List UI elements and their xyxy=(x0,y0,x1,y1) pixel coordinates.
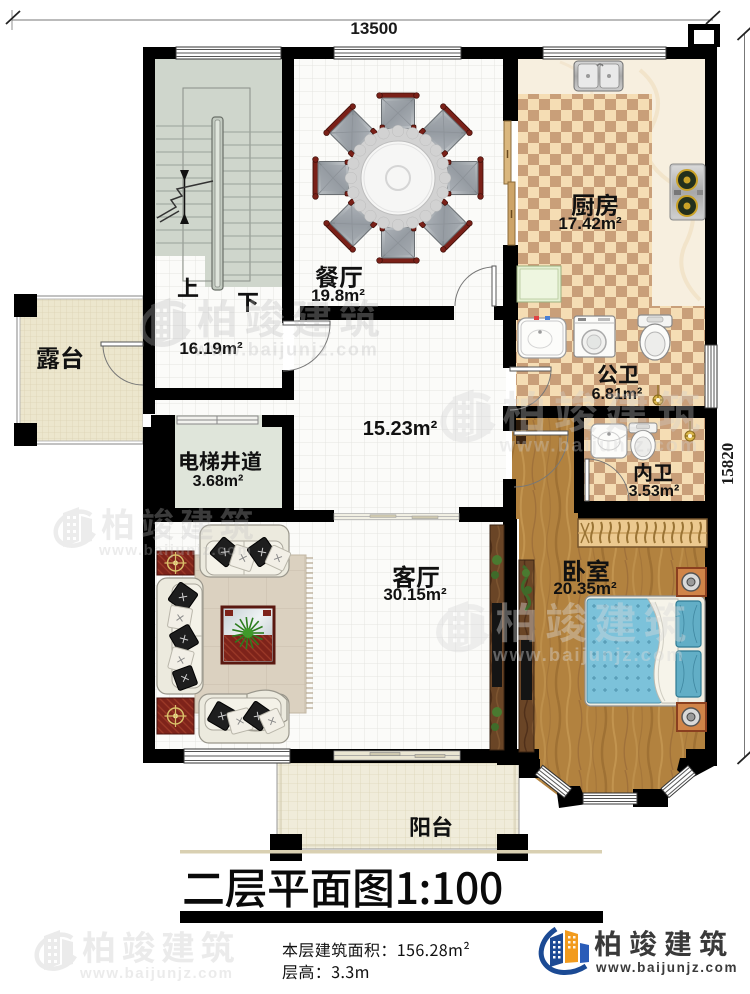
svg-text:3.53m²: 3.53m² xyxy=(629,483,680,500)
svg-text:17.42m²: 17.42m² xyxy=(558,214,622,233)
svg-text:www.baijunjz.com: www.baijunjz.com xyxy=(492,644,685,665)
svg-text:3.68m²: 3.68m² xyxy=(193,473,244,490)
svg-text:30.15m²: 30.15m² xyxy=(383,585,447,604)
svg-text:www.baijunjz.com: www.baijunjz.com xyxy=(499,435,699,457)
svg-text:15820: 15820 xyxy=(718,443,737,486)
svg-text:www.baijunjz.com: www.baijunjz.com xyxy=(79,965,233,982)
svg-text:www.baijunjz.com: www.baijunjz.com xyxy=(595,960,738,975)
svg-text:13500: 13500 xyxy=(350,19,397,38)
svg-text:19.8m²: 19.8m² xyxy=(311,286,365,305)
svg-text:www.baijunjz.com: www.baijunjz.com xyxy=(98,542,252,559)
svg-text:15.23m²: 15.23m² xyxy=(363,418,438,440)
svg-text:20.35m²: 20.35m² xyxy=(553,579,617,598)
svg-text:www.baijunjz.com: www.baijunjz.com xyxy=(193,339,378,359)
